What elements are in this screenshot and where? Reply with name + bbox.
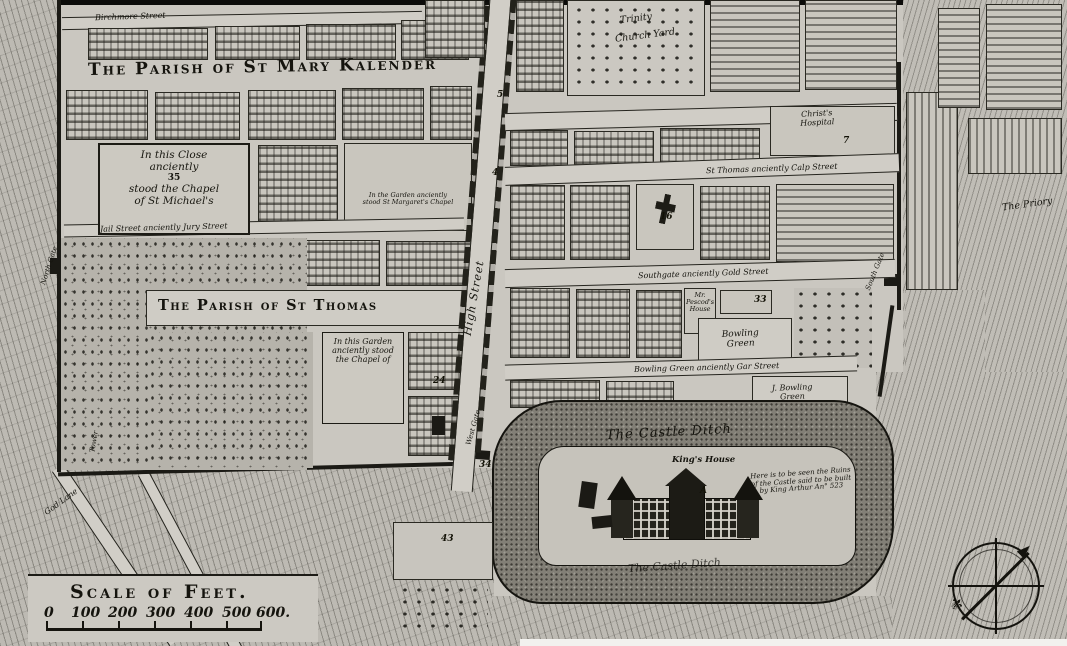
scale-tick-label: 100 [71,606,100,621]
city-block [300,240,380,286]
city-block [155,92,240,140]
town-wall [897,62,901,310]
city-block [576,289,630,358]
garden-strips [906,92,958,290]
scale-of-feet: Scale of Feet. 0 100 200 300 400 500 600… [28,574,318,642]
city-block [430,86,472,140]
city-block [248,90,336,140]
pescod-house-label: Mr. Pescod's House [686,292,714,313]
marker: 4 [492,168,498,178]
city-block [386,241,471,286]
parish-thomas-label: The Parish of St Thomas [158,298,378,314]
city-block [258,145,338,230]
city-block [700,186,770,260]
note-line: the Chapel of [323,355,403,364]
city-block [510,185,565,260]
woods [148,332,313,468]
garden-strips [968,118,1062,174]
marker: 34 [479,460,492,470]
scale-tick-label: 600. [256,606,290,621]
christs-hospital-label: Christ's Hospital [800,109,835,128]
town-wall [57,0,61,472]
note-line: In this Garden [323,337,403,346]
city-block [636,290,682,358]
marker: A [700,486,707,496]
note-line: anciently stood [323,346,403,355]
note-line: of St Michael's [100,195,248,207]
marker: 24 [433,376,446,386]
city-block [570,185,630,260]
scale-tick-label: 400 [184,606,213,621]
city-block [393,522,493,580]
note-line: In this Close [100,149,248,161]
scale-title: Scale of Feet. [70,582,249,603]
scale-tick-label: 500 [222,606,251,621]
city-block [776,184,894,262]
city-block [510,130,568,166]
city-block [805,0,897,90]
scale-bar [46,628,262,631]
parish-mary-label: The Parish of St Mary Kalender [88,55,437,80]
pyramid-roof [607,476,637,500]
city-block [88,28,208,60]
city-block [574,131,654,165]
note-line: stood the Chapel [100,183,248,195]
marker: 33 [754,295,767,305]
city-block [215,26,300,60]
marker: 16 [660,212,673,222]
kings-house-label: King's House [672,456,735,465]
compass-rose: ⚜ [946,536,1046,636]
city-block [510,288,570,358]
map-image: In this Close anciently 35 stood the Cha… [0,0,1067,646]
outbuilding [591,515,612,529]
marker: 5 [497,90,503,100]
tower-wing [611,500,633,538]
tower-wing [737,500,759,538]
scale-tick-label: 300 [146,606,175,621]
j-bowling-green-label: J. Bowling Green [772,383,813,402]
city-block [66,90,148,140]
note-line: anciently [100,161,248,173]
city-block [342,88,424,140]
orchard [398,584,488,636]
marker: 43 [441,534,454,544]
city-block [938,8,980,108]
city-block [710,0,800,92]
scale-tick-label: 200 [108,606,137,621]
marker: 7 [843,136,849,146]
garden-note-box: In this Garden anciently stood the Chape… [322,332,404,424]
note-line: 35 [100,173,248,183]
city-block [425,0,485,58]
photo-margin [520,639,1067,646]
margaret-note: In the Garden anciently stood St Margare… [352,192,464,206]
city-block [986,4,1062,110]
city-block [516,0,564,92]
bowling-green-label: Bowling Green [722,329,760,351]
pediment [665,468,707,486]
field [905,290,985,400]
chapel-icon [432,416,445,435]
scale-tick-label: 0 [44,606,54,621]
